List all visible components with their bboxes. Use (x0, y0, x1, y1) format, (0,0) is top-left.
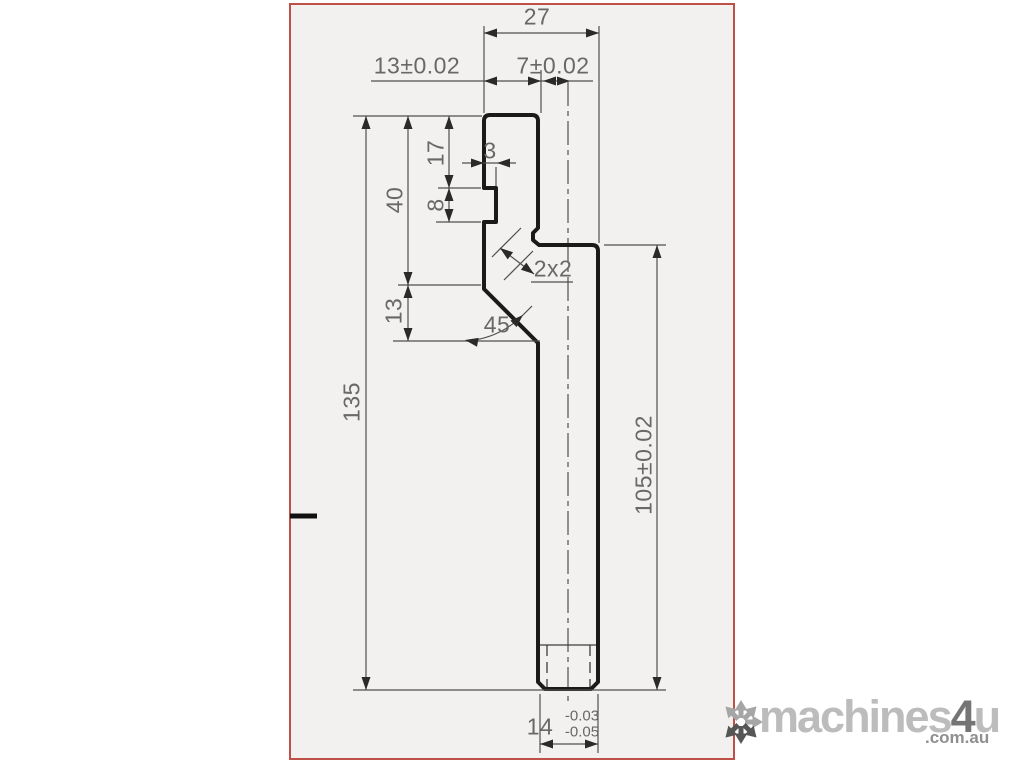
dim-tab-to-center: 7±0.02 (516, 55, 589, 78)
dim-notch-height: 8 (425, 198, 448, 211)
dim-overall-width-top: 27 (524, 6, 551, 29)
dim-chamfer-angle: 45 (484, 314, 511, 337)
dim-chamfer-drop: 13 (383, 298, 406, 325)
drawing-page: 27 13±0.02 7±0.02 3 17 8 40 13 135 45 2x… (0, 0, 1024, 768)
dim-shank-tol-upper: -0.03 (565, 709, 599, 724)
dim-shank-height: 105±0.02 (633, 415, 656, 515)
logo-brand-main: machines (759, 691, 951, 742)
dim-upper-section-height: 40 (384, 187, 407, 214)
dim-tab-width: 13±0.02 (374, 55, 460, 78)
dim-notch-depth: 3 (483, 140, 496, 163)
logo-suffix: .com.au (925, 729, 989, 746)
dim-shank-tol-lower: -0.05 (565, 725, 599, 740)
dim-top-to-notch: 17 (425, 140, 448, 167)
dim-chamfer-size: 2x2 (534, 258, 573, 281)
dim-overall-height: 135 (341, 382, 364, 422)
dim-shank-width: 14 (527, 716, 554, 739)
